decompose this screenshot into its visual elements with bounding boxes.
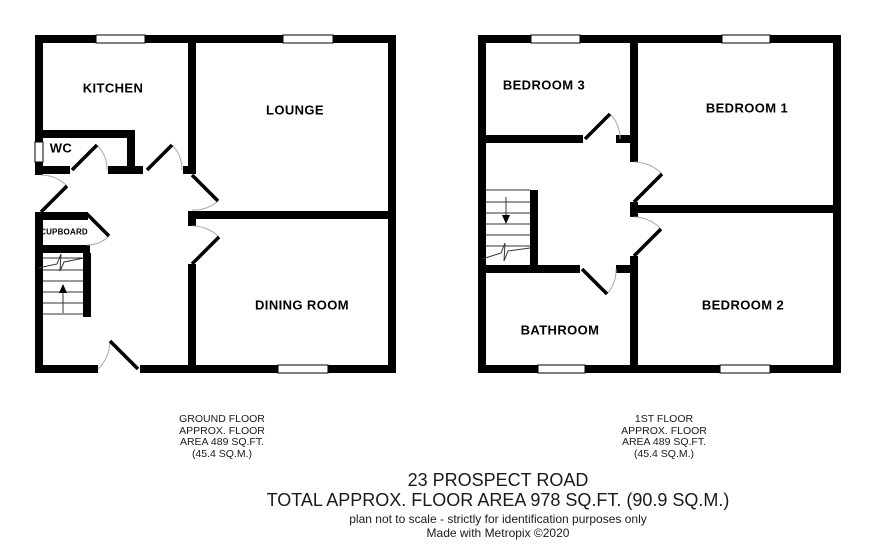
door-leaf [41, 186, 67, 212]
room-label-bedroom3: BEDROOM 3 [503, 78, 585, 93]
room-label-cupboard: CUPBOARD [40, 228, 88, 237]
disclaimer-text: plan not to scale - strictly for identif… [349, 512, 646, 526]
wc-door [72, 145, 107, 170]
back-door [98, 341, 138, 369]
room-label-bathroom: BATHROOM [521, 323, 600, 338]
door-arc [87, 236, 109, 245]
wall-segment [630, 256, 638, 373]
room-label-bedroom2: BEDROOM 2 [702, 298, 784, 313]
door-leaf [72, 145, 97, 170]
room-label-wc: WC [50, 141, 72, 156]
wall-segment [183, 166, 196, 174]
wall-segment [616, 265, 638, 273]
door-arc [192, 201, 218, 210]
door-arc [172, 145, 182, 170]
wall-segment [478, 35, 486, 373]
wall-segment [35, 166, 70, 174]
cupboard-door [87, 214, 109, 245]
caption-line: 1ST FLOOR [621, 414, 707, 426]
door-leaf [634, 229, 661, 256]
wall-segment [478, 365, 841, 373]
door-leaf [192, 175, 218, 201]
window [283, 35, 333, 43]
window [278, 365, 328, 373]
first-floor-caption: 1ST FLOOR APPROX. FLOOR AREA 489 SQ.FT. … [621, 414, 707, 460]
down-arrow-icon [502, 197, 510, 224]
window [35, 142, 43, 162]
ground-floor-windows [35, 35, 333, 373]
wall-segment [478, 135, 583, 143]
front-door [41, 175, 67, 212]
door-arc [607, 269, 616, 294]
door-arc [41, 175, 67, 186]
caption-line: (45.4 SQ.M.) [179, 449, 265, 461]
wall-segment [188, 264, 196, 373]
caption-line: (45.4 SQ.M.) [621, 449, 707, 461]
window [720, 365, 770, 373]
wall-segment [530, 190, 538, 267]
room-label-kitchen: KITCHEN [83, 81, 144, 96]
ground-floor-caption: GROUND FLOOR APPROX. FLOOR AREA 489 SQ.F… [179, 414, 265, 460]
bedroom2-door [634, 217, 661, 256]
bedroom3-door [585, 114, 620, 139]
wall-segment [35, 245, 90, 253]
wall-segment [35, 212, 88, 220]
window [96, 35, 145, 43]
wall-segment [478, 265, 580, 273]
window [531, 35, 580, 43]
door-leaf [192, 237, 219, 264]
door-arc [192, 226, 219, 237]
total-area-title: TOTAL APPROX. FLOOR AREA 978 SQ.FT. (90.… [267, 490, 730, 511]
caption-line: AREA 489 SQ.FT. [621, 437, 707, 449]
credit-text: Made with Metropix ©2020 [427, 526, 570, 540]
address-title: 23 PROSPECT ROAD [408, 470, 589, 491]
floorplan-page: { "floors": { "ground": { "rooms": { "ki… [0, 0, 886, 546]
staircase-ground [38, 254, 84, 314]
room-label-lounge: LOUNGE [266, 103, 324, 118]
wall-segment [188, 35, 196, 170]
door-leaf [110, 341, 138, 369]
wall-segment [616, 135, 638, 143]
kitchen-door [147, 145, 182, 170]
room-label-dining-room: DINING ROOM [255, 298, 349, 313]
bathroom-door [582, 269, 616, 294]
bedroom1-door [634, 162, 662, 202]
window [538, 365, 585, 373]
wall-segment [833, 35, 841, 373]
door-opening [35, 175, 43, 212]
lounge-door [192, 175, 218, 210]
wall-segment [630, 202, 638, 217]
wall-segment [83, 253, 91, 317]
wall-segment [35, 365, 396, 373]
door-arc [634, 162, 662, 174]
room-label-bedroom1: BEDROOM 1 [706, 101, 788, 116]
door-arc [98, 341, 110, 369]
door-arc [97, 145, 107, 170]
door-leaf [582, 269, 607, 294]
caption-line: AREA 489 SQ.FT. [179, 437, 265, 449]
wall-segment [108, 166, 143, 174]
wall-segment [388, 35, 396, 373]
stair-break-line [38, 254, 84, 271]
wall-segment [630, 205, 841, 213]
wall-segment [35, 130, 135, 138]
caption-line: GROUND FLOOR [179, 414, 265, 426]
door-leaf [147, 145, 172, 170]
window [722, 35, 770, 43]
dining-room-door [192, 226, 219, 264]
door-arc [634, 217, 661, 229]
wall-segment [188, 211, 396, 219]
wall-segment [35, 35, 396, 43]
door-leaf [634, 174, 662, 202]
staircase-first [482, 190, 530, 261]
door-leaf [87, 214, 109, 236]
wall-segment [188, 211, 196, 226]
door-leaf [585, 114, 610, 139]
up-arrow-icon [59, 284, 67, 313]
